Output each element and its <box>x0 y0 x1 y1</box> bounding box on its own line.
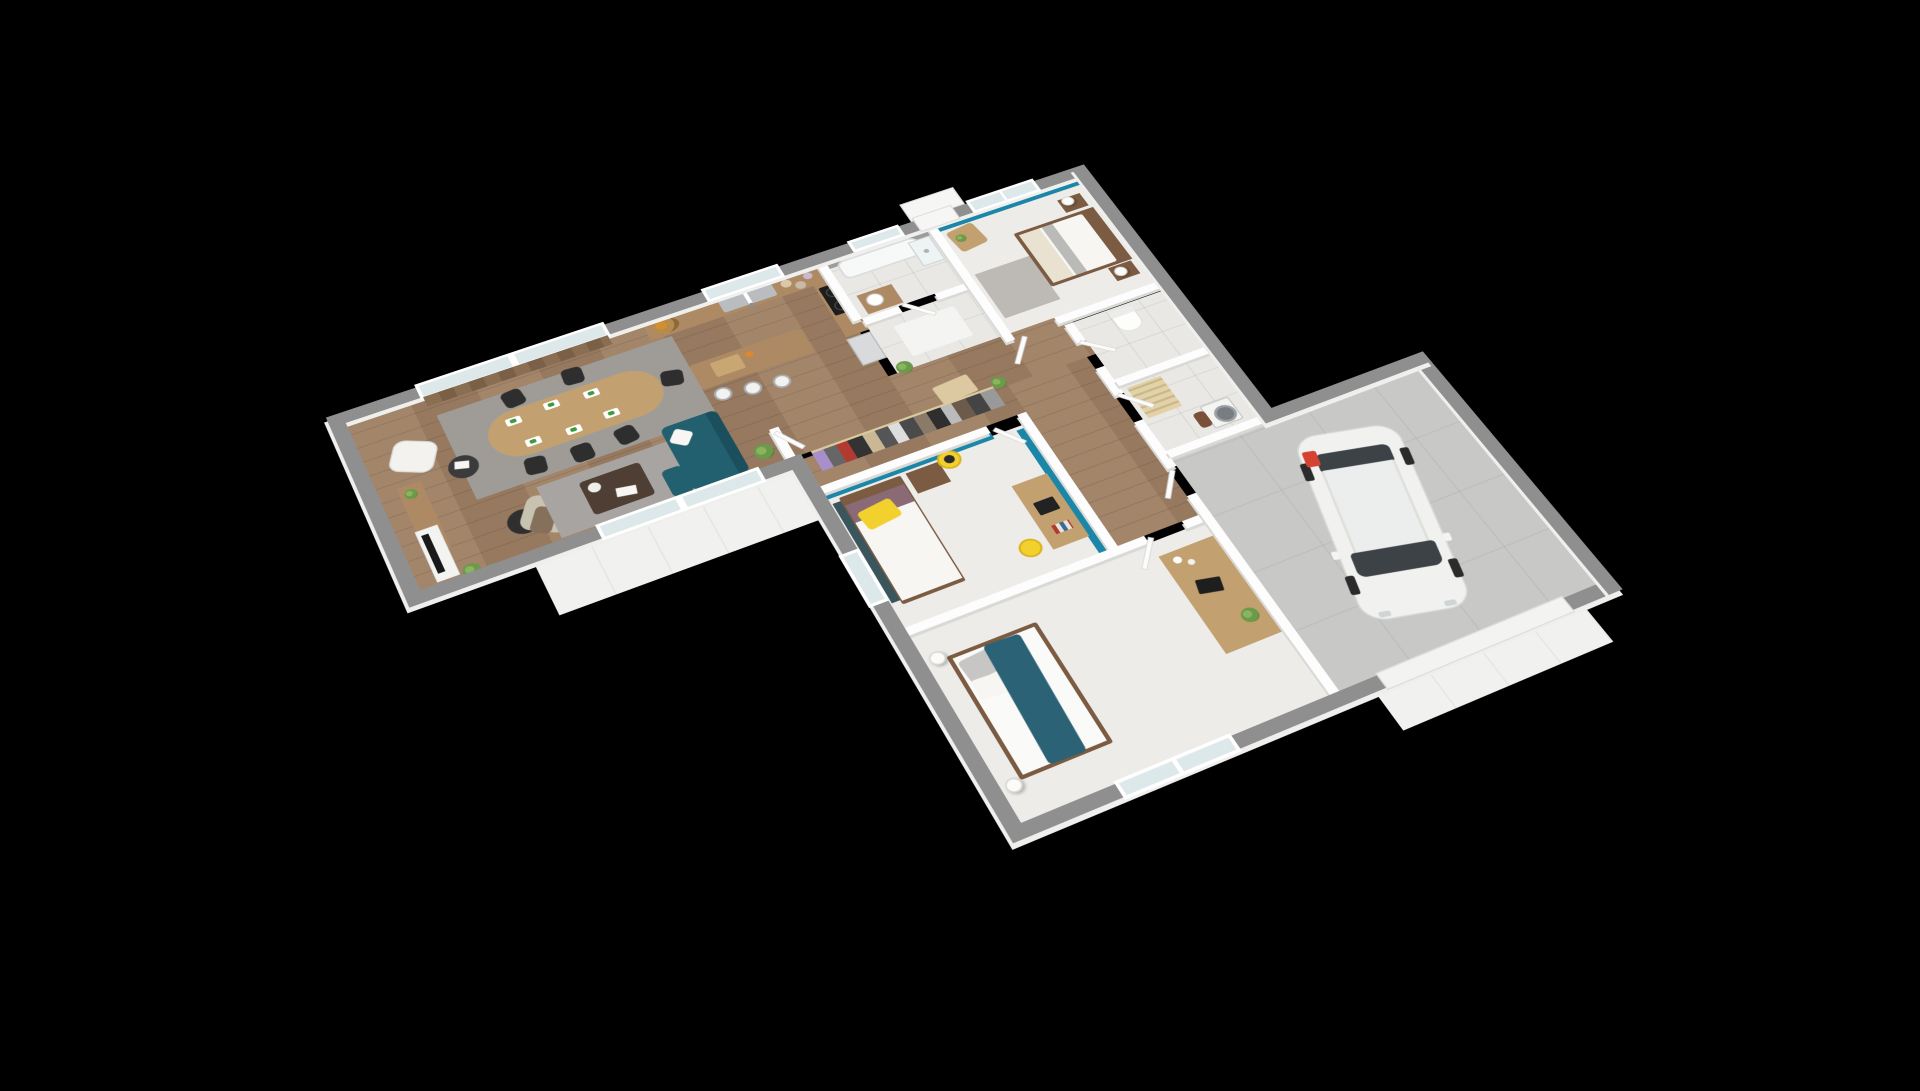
floorplan-3d <box>309 95 1665 1081</box>
scene-viewport <box>0 0 1920 1080</box>
floorplan-content <box>342 122 1645 1067</box>
books-on-table <box>454 460 469 469</box>
lounge-chair-white <box>387 440 439 473</box>
